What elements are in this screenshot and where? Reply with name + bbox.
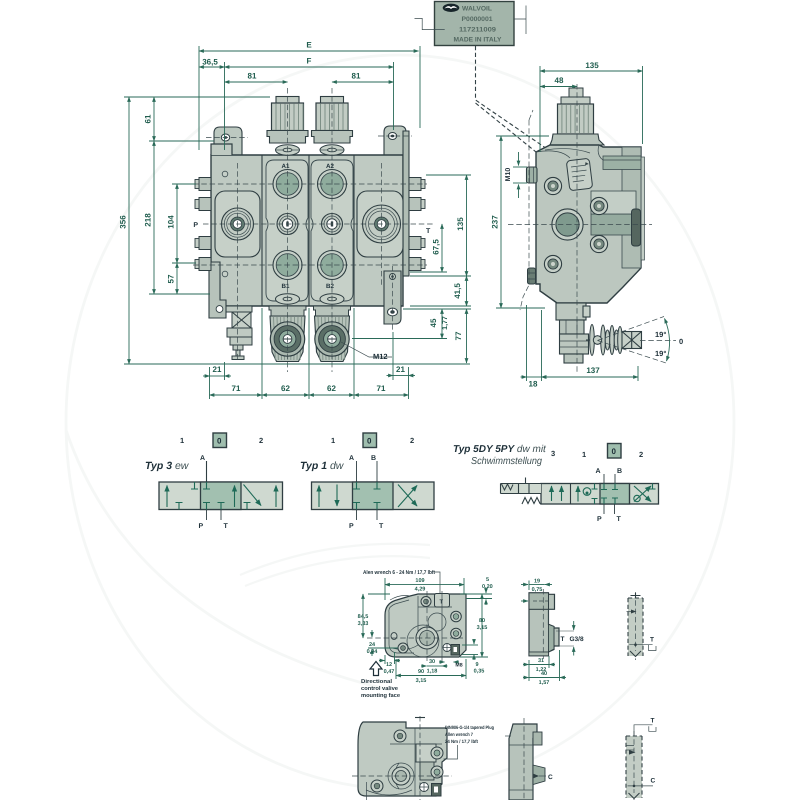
svg-text:62: 62 xyxy=(281,384,290,393)
svg-text:2: 2 xyxy=(639,450,643,459)
svg-text:F: F xyxy=(307,57,312,66)
svg-text:41,5: 41,5 xyxy=(453,283,462,299)
svg-text:Typ 1 dw: Typ 1 dw xyxy=(300,460,345,472)
svg-text:0,94: 0,94 xyxy=(367,649,379,655)
svg-text:3,33: 3,33 xyxy=(358,621,369,627)
svg-text:3,15: 3,15 xyxy=(416,678,427,684)
svg-text:M10: M10 xyxy=(505,168,512,182)
svg-text:B: B xyxy=(371,455,376,462)
svg-text:M12: M12 xyxy=(373,352,388,361)
svg-text:T: T xyxy=(379,523,384,530)
svg-text:218: 218 xyxy=(144,213,153,227)
svg-text:5: 5 xyxy=(486,577,489,583)
svg-text:57: 57 xyxy=(167,274,176,283)
svg-text:3,15: 3,15 xyxy=(477,625,488,631)
svg-text:84,5: 84,5 xyxy=(358,614,369,620)
svg-text:90: 90 xyxy=(418,669,424,675)
svg-text:0: 0 xyxy=(679,337,683,346)
svg-text:24 Nm / 17,7 lbft: 24 Nm / 17,7 lbft xyxy=(445,739,478,745)
svg-text:T: T xyxy=(561,636,565,643)
svg-text:137: 137 xyxy=(586,366,600,375)
svg-text:1: 1 xyxy=(180,436,184,445)
svg-text:19: 19 xyxy=(534,579,540,585)
svg-text:A: A xyxy=(349,455,354,462)
svg-text:4,29: 4,29 xyxy=(415,587,426,593)
svg-text:0,20: 0,20 xyxy=(482,584,493,590)
svg-text:Allen wrench 7: Allen wrench 7 xyxy=(445,732,473,738)
svg-text:0: 0 xyxy=(367,437,372,446)
svg-text:356: 356 xyxy=(119,215,128,229)
svg-text:Typ 3 ew: Typ 3 ew xyxy=(145,460,190,472)
svg-text:C: C xyxy=(651,778,656,785)
svg-text:61: 61 xyxy=(144,114,153,123)
svg-text:G3/8: G3/8 xyxy=(570,636,584,643)
svg-text:B1: B1 xyxy=(282,283,290,290)
svg-text:DIN906-G-1/4 tapered Plug: DIN906-G-1/4 tapered Plug xyxy=(445,725,494,731)
svg-text:T: T xyxy=(426,228,431,235)
svg-text:mounting face: mounting face xyxy=(361,692,400,699)
svg-text:P: P xyxy=(349,523,354,530)
svg-text:24: 24 xyxy=(369,642,376,648)
svg-text:1: 1 xyxy=(331,436,335,445)
svg-text:80: 80 xyxy=(479,618,485,624)
svg-text:19°: 19° xyxy=(655,330,666,339)
svg-text:40: 40 xyxy=(541,671,547,677)
svg-text:B2: B2 xyxy=(326,283,334,290)
svg-text:M8: M8 xyxy=(455,663,462,669)
svg-text:19°: 19° xyxy=(655,349,666,358)
svg-text:135: 135 xyxy=(585,61,599,70)
svg-text:77: 77 xyxy=(454,331,463,340)
svg-text:135: 135 xyxy=(456,217,465,231)
svg-text:30: 30 xyxy=(429,659,435,665)
svg-text:81: 81 xyxy=(352,72,361,81)
svg-text:T: T xyxy=(224,523,229,530)
svg-text:MADE IN ITALY: MADE IN ITALY xyxy=(454,37,503,44)
svg-text:18: 18 xyxy=(529,380,538,389)
svg-text:1,77: 1,77 xyxy=(442,316,449,330)
svg-text:P0000001: P0000001 xyxy=(462,16,493,23)
svg-text:A: A xyxy=(200,455,205,462)
svg-text:62: 62 xyxy=(327,384,336,393)
svg-text:3: 3 xyxy=(551,449,555,458)
svg-text:0: 0 xyxy=(612,447,617,456)
svg-text:A2: A2 xyxy=(326,163,334,170)
svg-text:E: E xyxy=(306,41,312,50)
svg-text:P: P xyxy=(193,222,198,229)
svg-text:0,47: 0,47 xyxy=(384,669,395,675)
svg-text:0: 0 xyxy=(217,437,222,446)
svg-text:A: A xyxy=(596,468,601,475)
svg-text:12: 12 xyxy=(386,662,392,668)
svg-text:T: T xyxy=(650,637,654,644)
svg-text:117211009: 117211009 xyxy=(459,27,496,34)
svg-text:1,18: 1,18 xyxy=(427,669,438,675)
svg-text:Directional: Directional xyxy=(361,678,392,685)
svg-text:Typ 5DY 5PY dw mit: Typ 5DY 5PY dw mit xyxy=(453,444,547,455)
svg-text:21: 21 xyxy=(213,365,222,374)
svg-text:104: 104 xyxy=(167,215,176,229)
svg-text:67,5: 67,5 xyxy=(432,239,441,255)
svg-text:109: 109 xyxy=(415,578,424,584)
svg-text:36,5: 36,5 xyxy=(202,58,218,67)
svg-text:0,75: 0,75 xyxy=(532,587,543,593)
svg-text:31: 31 xyxy=(538,658,544,664)
svg-text:2: 2 xyxy=(410,436,414,445)
svg-text:WALVOIL: WALVOIL xyxy=(462,6,492,13)
svg-text:71: 71 xyxy=(377,384,386,393)
svg-text:45: 45 xyxy=(429,318,438,327)
svg-text:21: 21 xyxy=(396,365,405,374)
svg-text:P: P xyxy=(199,523,204,530)
svg-text:237: 237 xyxy=(491,215,500,229)
svg-text:2: 2 xyxy=(259,436,263,445)
svg-text:0,35: 0,35 xyxy=(474,669,485,675)
svg-text:Alen wrench 6 - 24 Nm / 17,7 l: Alen wrench 6 - 24 Nm / 17,7 lbft xyxy=(363,570,435,576)
svg-text:C: C xyxy=(548,774,553,781)
svg-text:81: 81 xyxy=(248,72,257,81)
svg-text:P: P xyxy=(597,516,602,523)
svg-text:T: T xyxy=(651,718,655,725)
svg-text:48: 48 xyxy=(555,76,564,85)
svg-text:1,57: 1,57 xyxy=(539,680,550,686)
svg-text:T: T xyxy=(617,516,622,523)
svg-text:B: B xyxy=(617,468,622,475)
svg-text:1: 1 xyxy=(582,450,586,459)
svg-text:Schwimmstellung: Schwimmstellung xyxy=(471,456,542,467)
svg-text:A1: A1 xyxy=(282,163,290,170)
svg-text:control valive: control valive xyxy=(361,685,398,692)
svg-text:9: 9 xyxy=(475,662,478,668)
svg-text:71: 71 xyxy=(232,384,241,393)
svg-text:T: T xyxy=(440,600,444,606)
